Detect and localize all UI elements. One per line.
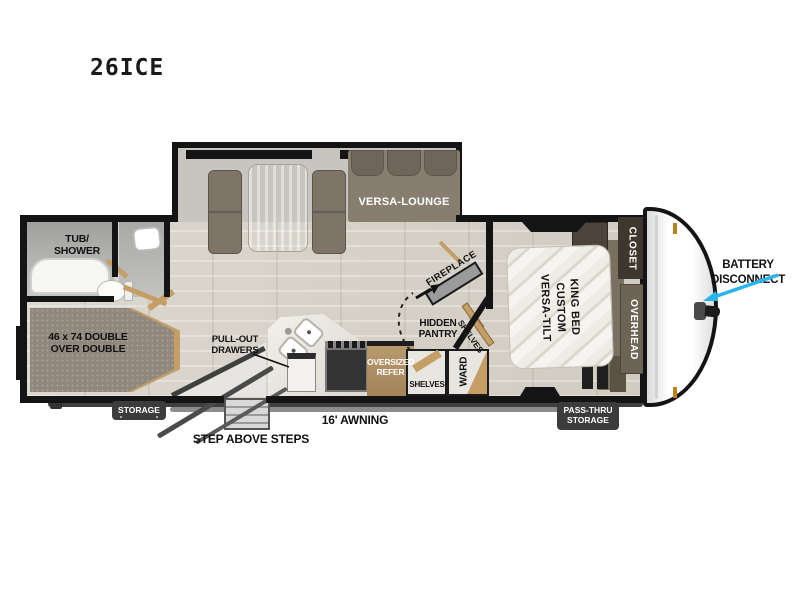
- wall-tub-bottom: [26, 296, 114, 302]
- battery-disconnect-knob-tip: [704, 305, 720, 318]
- ward-label: WARD: [447, 350, 481, 394]
- passthru-storage-badge: PASS-THRU STORAGE: [557, 402, 619, 430]
- overhead-label: OVERHEAD: [628, 299, 639, 360]
- king-bed: KING BED CUSTOM VERSA-TILT: [506, 244, 614, 370]
- versa-lounge-sofa: [348, 150, 460, 222]
- pullout-drawers-cabinet: [287, 353, 316, 392]
- marker-light: [673, 223, 677, 234]
- versa-lounge-label: VERSA-LOUNGE: [352, 196, 456, 208]
- awning-label: 16' AWNING: [310, 414, 400, 427]
- dinette-table: [248, 164, 308, 252]
- bed-speaker: [597, 364, 608, 389]
- storage-badge: STORAGE: [112, 401, 166, 420]
- wall-top-left: [20, 215, 178, 222]
- bedroom-window-bottom: [520, 387, 560, 396]
- refer-label: OVERSIZEDREFER: [367, 358, 414, 377]
- shelf-board: [412, 350, 442, 373]
- king-bed-label: KING BED CUSTOM VERSA-TILT: [537, 272, 582, 341]
- closet-cabinet: CLOSET: [618, 217, 645, 279]
- battery-disconnect-label: BATTERYDISCONNECT: [702, 258, 794, 288]
- wall-vanity-right: [164, 221, 170, 297]
- slideout-window: [186, 150, 312, 159]
- wall-bedroom: [486, 215, 493, 309]
- step-above-steps-label: STEP ABOVE STEPS: [190, 433, 312, 446]
- rear-window: [16, 326, 25, 380]
- marker-light: [673, 387, 677, 398]
- model-title: 26ICE: [90, 55, 164, 81]
- bedroom-window-top: [522, 222, 586, 232]
- tub-shower-label: TUB/SHOWER: [45, 234, 109, 258]
- cap-seam: [655, 215, 658, 399]
- closet-label: CLOSET: [626, 226, 637, 270]
- pullout-drawers-label: PULL-OUTDRAWERS: [207, 335, 263, 356]
- bathroom-sink: [132, 226, 162, 253]
- stove: [325, 348, 368, 392]
- stove-knobs: [325, 341, 368, 348]
- faucet-icon: [283, 326, 293, 336]
- bunk-label: 46 x 74 DOUBLEOVER DOUBLE: [28, 332, 148, 356]
- wall-tub-right: [112, 221, 118, 277]
- bed-speaker: [582, 364, 593, 389]
- shelves-label: SHELVES: [406, 381, 448, 390]
- sofa-back-cushions: [348, 150, 460, 176]
- dinette-bench: [312, 170, 346, 254]
- dinette-bench: [208, 170, 242, 254]
- floorplan-page: 26ICE: [0, 0, 800, 600]
